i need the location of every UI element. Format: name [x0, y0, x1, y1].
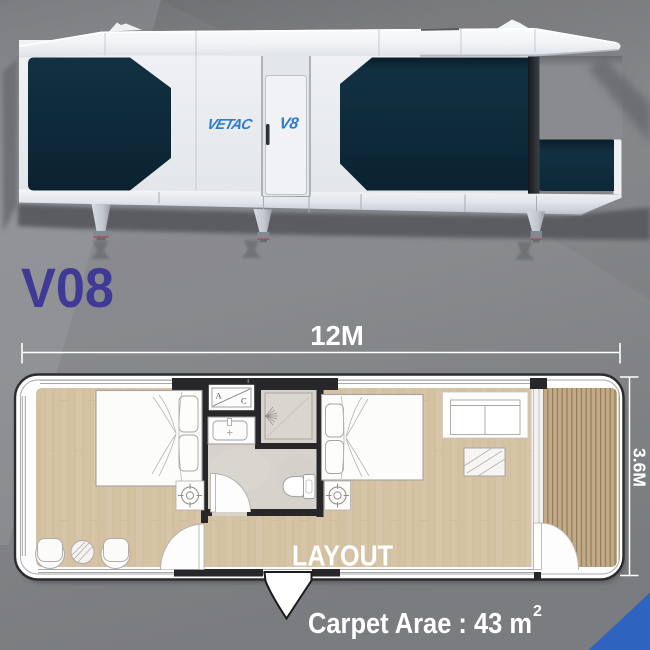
- svg-text:Carpet Arae : 43 m: Carpet Arae : 43 m: [308, 608, 532, 640]
- svg-text:A: A: [216, 391, 223, 401]
- svg-text:VETAC: VETAC: [205, 117, 254, 133]
- svg-text:C: C: [241, 396, 247, 406]
- svg-text:LAYOUT: LAYOUT: [292, 541, 393, 573]
- svg-text:3.6M: 3.6M: [630, 448, 650, 487]
- svg-text:V8: V8: [278, 115, 300, 133]
- svg-text:12M: 12M: [310, 320, 364, 351]
- svg-text:V08: V08: [21, 256, 114, 319]
- svg-text:2: 2: [533, 603, 542, 620]
